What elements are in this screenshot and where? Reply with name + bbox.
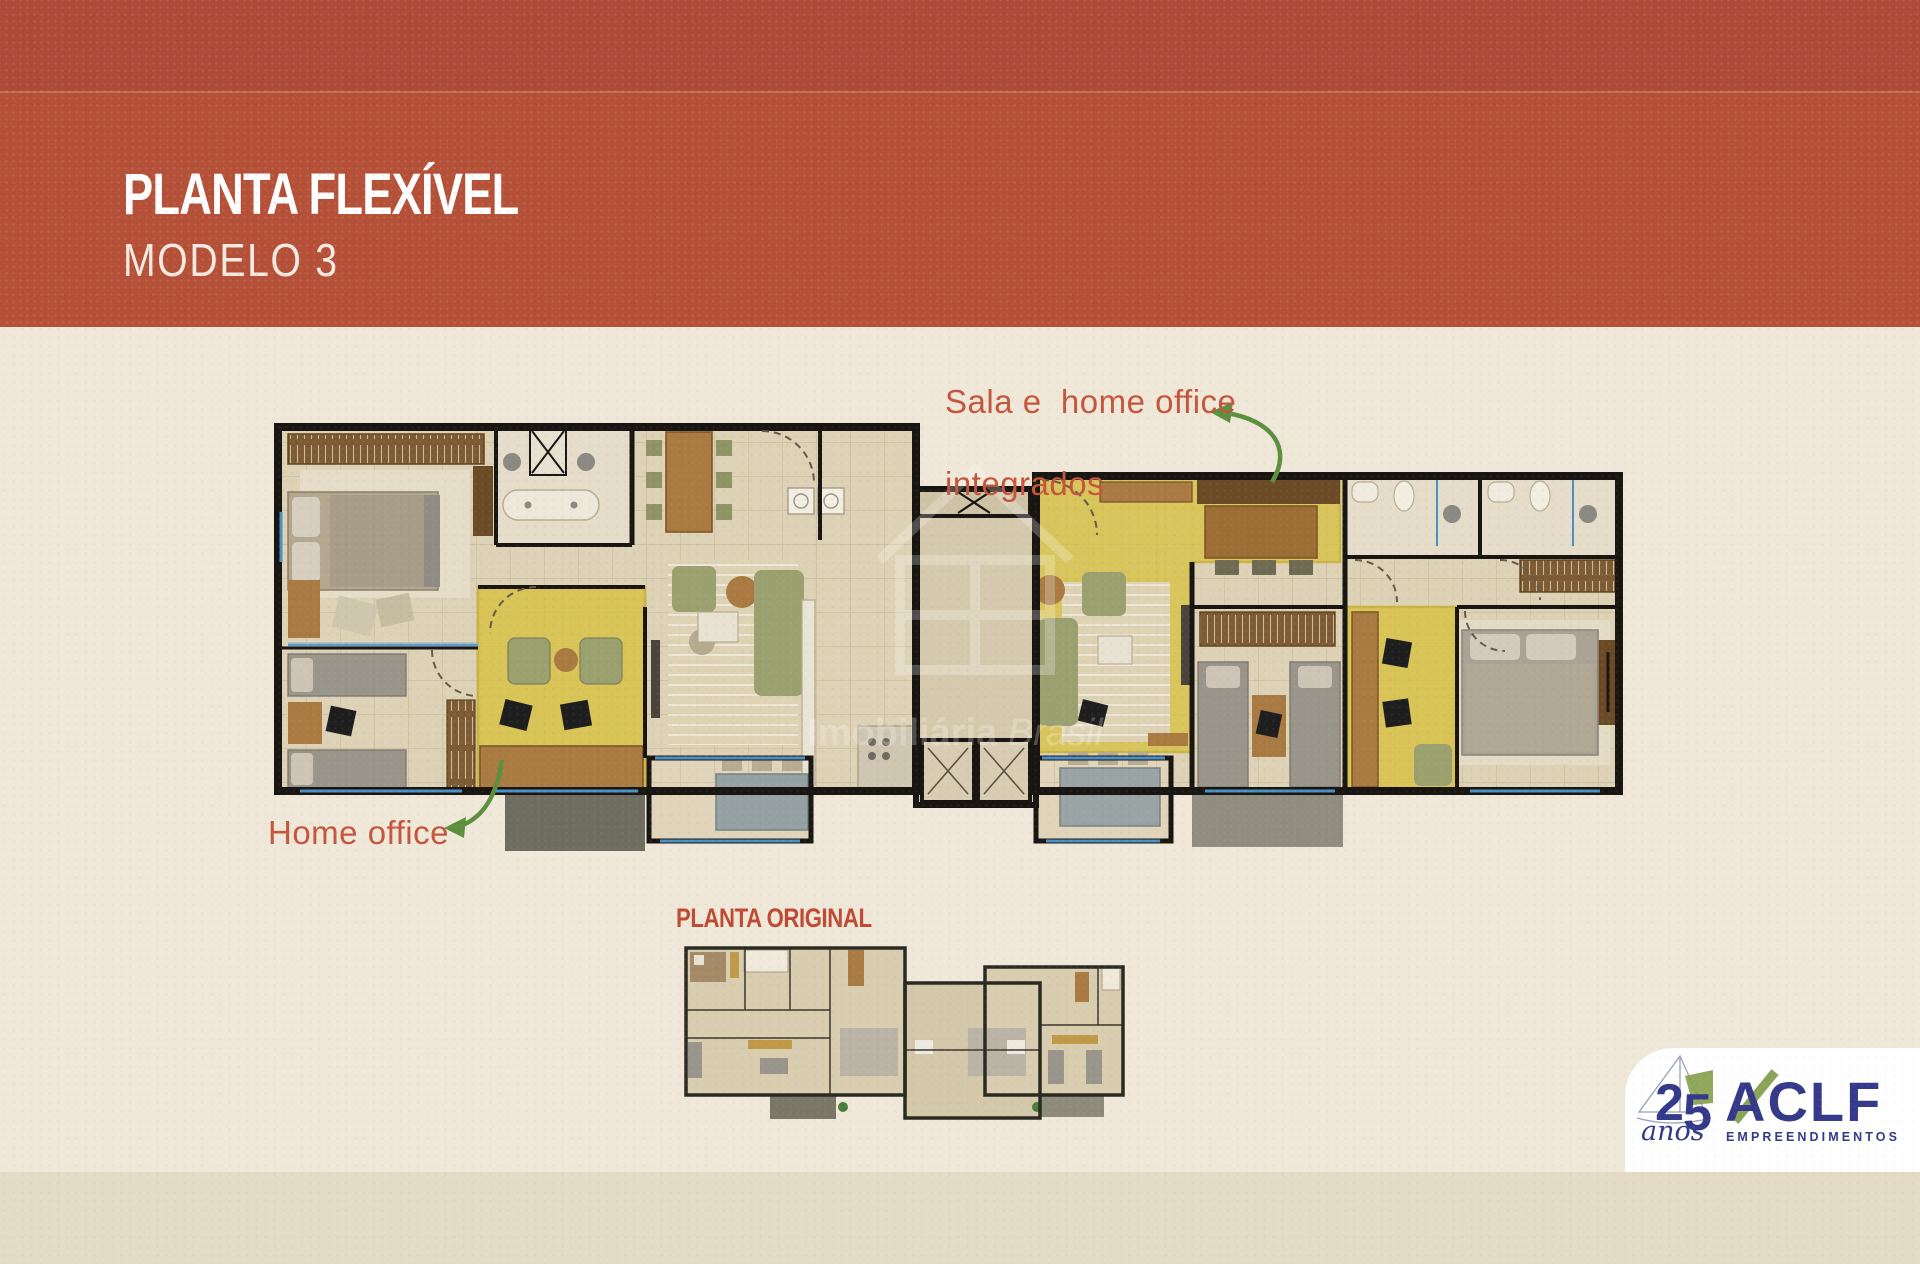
mini-bathroom xyxy=(744,950,788,972)
left-balcony-slab xyxy=(505,791,645,851)
mini-bed xyxy=(1048,1050,1064,1084)
mini-dining-table xyxy=(848,950,864,986)
office-chair xyxy=(1382,698,1411,727)
tv-panel xyxy=(651,640,660,718)
coffee-table xyxy=(698,612,738,642)
armchair xyxy=(580,638,622,684)
office-desk xyxy=(1352,612,1378,787)
watermark-text: Imobiliária Brasil xyxy=(807,712,1104,754)
mini-bed xyxy=(688,1042,702,1078)
office-chair xyxy=(1382,638,1412,668)
pillow xyxy=(291,753,313,785)
mini-bed xyxy=(1086,1050,1102,1084)
faucet xyxy=(571,502,578,509)
desk xyxy=(288,580,320,638)
sink xyxy=(1352,482,1378,502)
stone-table xyxy=(716,774,808,830)
aclf-logo: 2 5 anos ACLF EMPREENDIMENTOS xyxy=(1625,1048,1920,1172)
sala-annotation-line2: integrados xyxy=(945,465,1104,502)
duvet xyxy=(1466,664,1594,752)
right-balcony-slab xyxy=(1192,791,1343,847)
left-dining-room xyxy=(646,432,732,532)
chair xyxy=(1252,560,1276,575)
armchair xyxy=(508,638,550,684)
round-table xyxy=(554,648,578,672)
mini-closet xyxy=(730,952,739,978)
pillow xyxy=(1526,634,1576,660)
mini-bed xyxy=(760,1058,788,1074)
wardrobe-strip xyxy=(1200,612,1335,646)
tall-wardrobe xyxy=(473,466,493,536)
armchair xyxy=(672,566,716,612)
armchair xyxy=(1414,744,1452,786)
shower-drain xyxy=(1443,505,1461,523)
toilet xyxy=(1530,481,1550,511)
mini-plant-icon xyxy=(838,1102,848,1112)
louvered-closet xyxy=(447,700,475,788)
round-side-table xyxy=(726,576,758,608)
logo-card: 2 5 anos ACLF EMPREENDIMENTOS xyxy=(1625,1048,1920,1172)
sofa xyxy=(754,570,804,696)
washer xyxy=(788,488,814,514)
chair xyxy=(646,472,662,488)
mini-rug xyxy=(840,1028,898,1076)
mini-balcony-slab xyxy=(1040,1095,1104,1117)
faucet xyxy=(525,502,532,509)
chair xyxy=(646,504,662,520)
pillow xyxy=(1298,666,1332,688)
right-bathrooms xyxy=(1347,476,1617,557)
stone-table xyxy=(1060,768,1160,826)
pillow xyxy=(1470,634,1520,660)
bed-bench xyxy=(424,495,440,587)
toilet xyxy=(577,453,595,471)
chair xyxy=(716,472,732,488)
wardrobe-strip xyxy=(288,434,484,464)
duvet xyxy=(330,495,424,587)
sala-annotation-line1: Sala e home office xyxy=(945,383,1236,420)
pillow xyxy=(1206,666,1240,688)
dining-table xyxy=(666,432,712,532)
left-living-room xyxy=(651,560,804,745)
dining-table xyxy=(1205,506,1317,558)
mini-appliance xyxy=(915,1040,933,1054)
office-chair xyxy=(560,700,592,730)
pillow xyxy=(292,497,320,537)
chair xyxy=(646,440,662,456)
coffee-table xyxy=(1098,636,1132,664)
original-plan-title: PLANTA ORIGINAL xyxy=(676,903,872,934)
sink xyxy=(1488,482,1514,502)
mini-wardrobe xyxy=(748,1040,792,1049)
mini-dining-table xyxy=(1075,972,1089,1002)
office-desk xyxy=(480,746,643,790)
mini-pillow xyxy=(694,955,704,965)
chair xyxy=(1215,560,1239,575)
wardrobe-strip xyxy=(1520,560,1618,592)
tv-panel xyxy=(1181,605,1190,685)
double-vanity xyxy=(503,490,599,520)
toilet xyxy=(1394,481,1414,511)
home-office-annotation: Home office xyxy=(268,812,449,853)
mini-wardrobe xyxy=(1052,1035,1098,1044)
office-chair xyxy=(326,706,357,737)
chair xyxy=(716,504,732,520)
wood-rack xyxy=(1148,733,1188,746)
pillow xyxy=(291,658,313,692)
logo-tagline: EMPREENDIMENTOS xyxy=(1726,1130,1900,1144)
original-floorplan xyxy=(686,948,1123,1119)
left-bathroom xyxy=(496,427,632,545)
armchair xyxy=(1082,572,1126,616)
sala-annotation: Sala e home office integrados xyxy=(945,381,1236,504)
mini-bathroom xyxy=(1102,968,1120,990)
toilet xyxy=(503,453,521,471)
chair xyxy=(716,440,732,456)
shower-drain xyxy=(1579,505,1597,523)
mini-balcony-slab xyxy=(770,1095,836,1119)
logo-name: ACLF xyxy=(1725,1070,1882,1133)
pillow xyxy=(292,542,320,582)
chair xyxy=(1289,560,1313,575)
logo-anos-text: anos xyxy=(1641,1116,1705,1147)
desk xyxy=(288,702,322,744)
mini-appliance xyxy=(1007,1040,1025,1054)
